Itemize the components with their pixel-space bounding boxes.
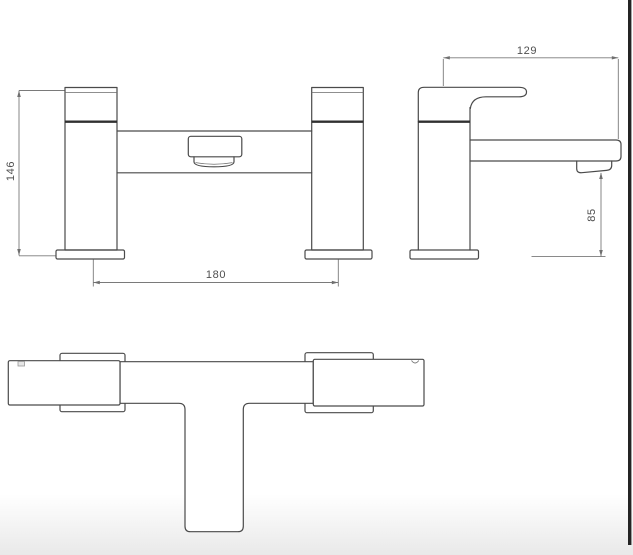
- side-view: 129 85: [410, 45, 621, 259]
- front-spout-aerator-rim: [196, 163, 233, 165]
- dimension-centres-180: 180: [93, 260, 338, 287]
- dim-180-arrow-right: [332, 281, 339, 284]
- dim-180-arrow-left: [93, 281, 100, 284]
- dim-146-extension-lines: [19, 91, 65, 256]
- front-left-base-plate: [56, 250, 125, 259]
- side-base-plate: [410, 250, 479, 259]
- dim-146-arrow-up: [17, 91, 21, 98]
- dim-85-arrow-down: [599, 250, 603, 257]
- dim-85-label: 85: [586, 208, 598, 221]
- dim-129-arrow-right: [612, 56, 619, 59]
- front-left-pillar: [65, 88, 117, 251]
- technical-drawing-canvas: 146 180: [0, 0, 633, 555]
- plan-right-handle: [313, 359, 424, 406]
- dimension-height-146: 146: [5, 91, 65, 256]
- dim-146-label: 146: [5, 161, 17, 181]
- plan-left-handle: [8, 361, 120, 405]
- bath-tap-dimension-drawing: 146 180: [0, 0, 633, 555]
- dim-85-arrow-up: [599, 173, 603, 180]
- plan-body-and-spout: [120, 362, 313, 532]
- front-right-base-plate: [305, 250, 372, 259]
- side-spout-outlet: [577, 161, 612, 173]
- dim-180-label: 180: [206, 269, 226, 281]
- front-view: 146 180: [5, 88, 372, 287]
- plan-left-handle-indicator: [18, 362, 25, 367]
- dim-146-arrow-down: [17, 249, 21, 256]
- front-right-pillar: [312, 88, 364, 251]
- side-spout-arm: [470, 140, 621, 161]
- side-pillar: [418, 108, 470, 251]
- front-spout-block: [188, 136, 242, 157]
- right-edge-strip: [628, 0, 631, 545]
- dimension-spout-height-85: 85: [532, 173, 606, 257]
- front-spout-aerator: [194, 157, 234, 167]
- side-handle-lever: [418, 87, 526, 121]
- dim-129-arrow-left: [443, 56, 450, 59]
- dim-129-label: 129: [517, 45, 537, 57]
- plan-view: [8, 353, 424, 532]
